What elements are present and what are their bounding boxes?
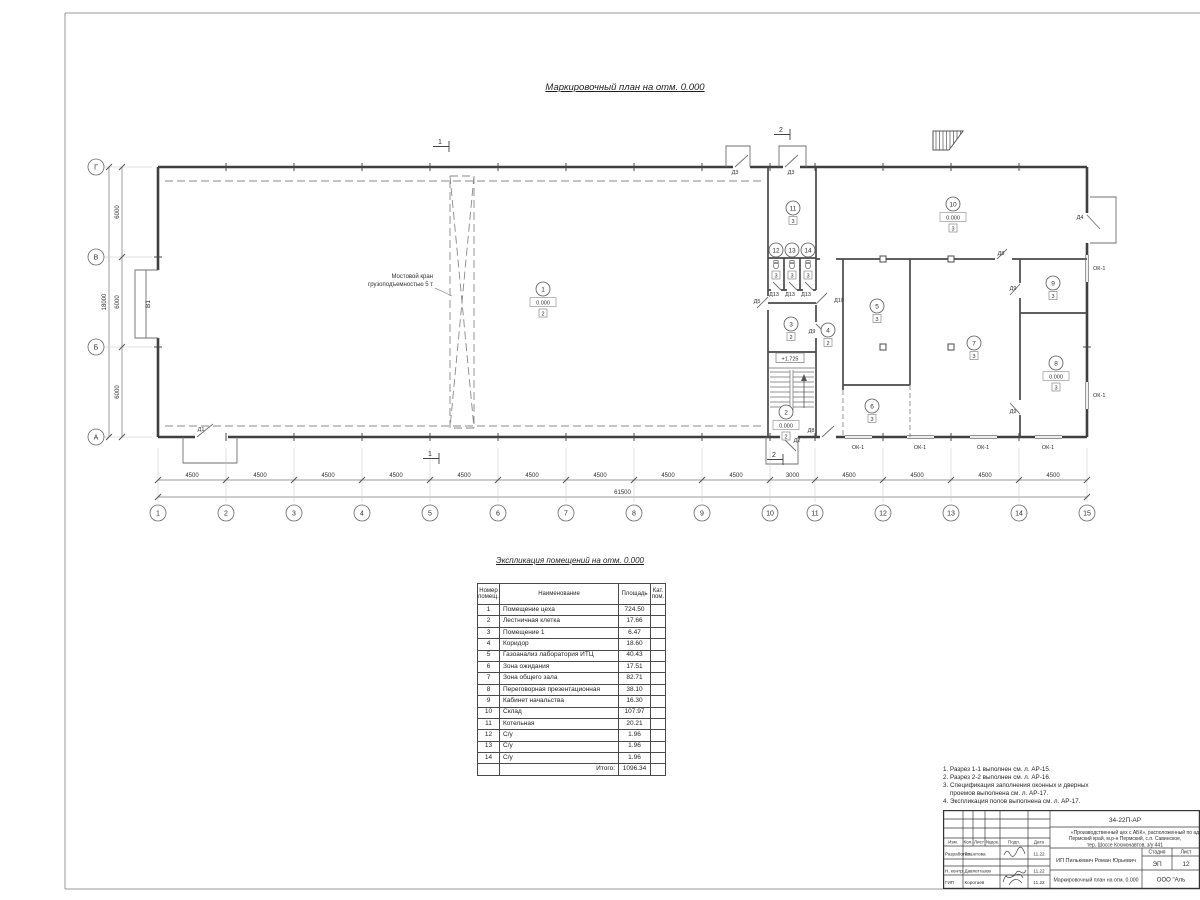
- grid-bubble: 13: [943, 505, 959, 521]
- drawing-sheet: { "titles": { "plan_title": "Маркировочн…: [0, 0, 1200, 900]
- project-address: Пермский край, м.р-н Пермский, с.п. Сави…: [1069, 835, 1181, 842]
- dimension-label: 4500: [661, 473, 675, 479]
- door-tag: Д13: [769, 292, 779, 298]
- table-row: 1Помещение цеха724.50: [478, 605, 666, 616]
- signature-date: 11.22: [1033, 880, 1045, 885]
- room-area-cell: 17.66: [619, 616, 651, 627]
- room-category-cell: [651, 707, 666, 718]
- room-name-cell: С/у: [500, 741, 619, 752]
- grid-bubble-number: 10: [766, 511, 774, 518]
- dimension-label: 4500: [593, 473, 607, 479]
- door-tag: Д3: [788, 170, 795, 176]
- grid-bubble: 7: [558, 505, 574, 521]
- room-label: 42: [821, 323, 835, 347]
- titleblock-column-header: Дата: [1034, 839, 1045, 844]
- room-area-cell: 1.96: [619, 753, 651, 764]
- room-number: 2: [784, 409, 788, 416]
- room-number-cell: 1: [478, 605, 500, 616]
- grid-bubble-number: 3: [292, 511, 296, 518]
- grid-bubble: В: [88, 249, 104, 265]
- section-mark-number: 1: [428, 451, 432, 458]
- elevation-value: 0.000: [1049, 374, 1063, 380]
- room-schedule-header: Номер помещ.НаименованиеПлощадьКат. пом.: [478, 584, 666, 605]
- grid-wall-ticks: [226, 163, 1019, 441]
- category-value: 3: [951, 226, 954, 232]
- section-mark-number: 1: [438, 139, 442, 146]
- grid-bubble: 3: [286, 505, 302, 521]
- room-name-cell: Помещение 1: [500, 627, 619, 638]
- crane-symbol: [165, 176, 763, 428]
- grid-bubble-number: 9: [700, 511, 704, 518]
- gate-label: В1: [145, 300, 152, 308]
- titleblock-column-header: Лист: [974, 839, 985, 844]
- sheet-number: 12: [1182, 861, 1190, 868]
- grid-bubble-letter: А: [94, 435, 99, 442]
- crane-label-leader: [435, 288, 452, 296]
- room-area-cell: 18.60: [619, 639, 651, 650]
- dimension-label: 4500: [1046, 473, 1060, 479]
- room-schedule-column-header: Наименование: [500, 584, 619, 605]
- room-name-cell: Склад: [500, 707, 619, 718]
- dimension-label: 4500: [729, 473, 743, 479]
- category-value: 3: [1054, 385, 1057, 391]
- room-category-cell: [651, 741, 666, 752]
- level-mark-value: +1.725: [782, 357, 799, 363]
- room-category-cell: [651, 639, 666, 650]
- grid-bubble-number: 14: [1015, 511, 1023, 518]
- room-category-cell: [651, 616, 666, 627]
- table-row: 8Переговорная презентационная38.10: [478, 684, 666, 695]
- room-number: 1: [541, 286, 545, 293]
- table-row: 5Газоанализ лаборатория ИТЦ40.43: [478, 650, 666, 661]
- room-number: 11: [790, 205, 797, 212]
- empty-cell: [651, 764, 666, 775]
- table-row: 13С/у1.96: [478, 741, 666, 752]
- room-category-cell: [651, 673, 666, 684]
- section-mark-number: 2: [779, 127, 783, 134]
- empty-cell: [478, 764, 500, 775]
- dimension-label: 4500: [525, 473, 539, 479]
- signer-name: Давлетгазов: [965, 869, 992, 874]
- room-name-cell: Котельная: [500, 718, 619, 729]
- room-area-cell: 38.10: [619, 684, 651, 695]
- project-address: тер. Шоссе Космонавтов, з/у 441: [1087, 842, 1163, 848]
- room-category-cell: [651, 730, 666, 741]
- grid-bubble: 8: [626, 505, 642, 521]
- door-tag: Д8: [998, 251, 1005, 257]
- dimension-label: 4500: [910, 473, 924, 479]
- plan-title: Маркировочный план на отм. 0.000: [455, 82, 795, 93]
- grid-bubble-number: 7: [564, 511, 568, 518]
- room-category-cell: [651, 605, 666, 616]
- door-tag: Д4: [1077, 215, 1084, 221]
- room-area-cell: 17.51: [619, 661, 651, 672]
- room-schedule-column-header: Кат. пом.: [651, 584, 666, 605]
- door-tag: Д5: [754, 299, 761, 305]
- room-name-cell: Зона общего зала: [500, 673, 619, 684]
- grid-bubble-number: 11: [811, 511, 818, 518]
- category-value: 3: [791, 219, 794, 225]
- table-row: 10Склад107.97: [478, 707, 666, 718]
- category-value: 2: [541, 311, 544, 317]
- signature-scribble: [1003, 870, 1026, 885]
- room-label: 10.0002: [530, 282, 556, 317]
- room-label: 143: [801, 243, 815, 279]
- elevation-value: 0.000: [779, 423, 793, 429]
- dimension-label: 4500: [457, 473, 471, 479]
- grid-bubble: 15: [1079, 505, 1095, 521]
- room-number-cell: 3: [478, 627, 500, 638]
- room-label: 133: [785, 243, 799, 279]
- room-number: 9: [1051, 280, 1055, 287]
- room-schedule-table: Номер помещ.НаименованиеПлощадьКат. пом.…: [477, 583, 666, 776]
- room-number-cell: 4: [478, 639, 500, 650]
- table-row: 9Кабинет начальства16.30: [478, 696, 666, 707]
- extension-lines: [104, 167, 1087, 502]
- door-tag: Д9: [1010, 286, 1017, 292]
- doc-number: 34-22П-АР: [1109, 817, 1141, 824]
- room-name-cell: Помещение цеха: [500, 605, 619, 616]
- total-value-cell: 1096.34: [619, 764, 651, 775]
- door-tag: Д9: [809, 329, 816, 335]
- category-value: 3: [790, 273, 793, 279]
- company-name: ООО "Аль: [1157, 878, 1185, 884]
- dimension-label: 4500: [253, 473, 267, 479]
- dimension-total-label: 61500: [614, 490, 631, 496]
- room-area-cell: 40.43: [619, 650, 651, 661]
- room-label: 73: [967, 336, 981, 360]
- room-name-cell: Лестничная клетка: [500, 616, 619, 627]
- grid-bubble-number: 1: [156, 511, 160, 518]
- room-label: 113: [786, 201, 800, 225]
- room-number: 3: [789, 321, 793, 328]
- grid-bubble: Г: [88, 159, 104, 175]
- elevation-value: 0.000: [946, 215, 960, 221]
- staircase: +1.725: [768, 353, 816, 410]
- crane-label: Мостовой кран: [391, 273, 433, 280]
- category-value: 3: [1051, 294, 1054, 300]
- grid-bubble-number: 12: [879, 511, 887, 518]
- door-tag: Д8: [808, 428, 815, 434]
- room-category-cell: [651, 718, 666, 729]
- door-tag: Д9: [1010, 409, 1017, 415]
- dimension-label: 6000: [115, 295, 121, 309]
- grid-bubble-number: 15: [1083, 511, 1091, 518]
- room-label: 93: [1046, 276, 1060, 300]
- category-value: 3: [870, 417, 873, 423]
- door-leaves: [197, 155, 1100, 451]
- section-mark: 2: [774, 127, 790, 140]
- category-value: 2: [784, 434, 787, 440]
- grid-bubble-number: 4: [360, 511, 364, 518]
- room-name-cell: Зона ожидания: [500, 661, 619, 672]
- door-tag: Д1: [198, 427, 205, 433]
- grid-bubble: 1: [150, 505, 166, 521]
- interior-columns: [880, 256, 954, 350]
- room-label: 32: [784, 317, 798, 341]
- room-number-cell: 7: [478, 673, 500, 684]
- room-area-cell: 20.21: [619, 718, 651, 729]
- dimension-label: 3000: [786, 473, 800, 479]
- grid-bubble: Б: [88, 339, 104, 355]
- table-row: Итого:1096.34: [478, 764, 666, 775]
- stair-direction-arrow: [801, 374, 807, 381]
- room-category-cell: [651, 661, 666, 672]
- room-area-cell: 6.47: [619, 627, 651, 638]
- titleblock-column-header: Подп.: [1008, 839, 1020, 844]
- total-label-cell: Итого:: [500, 764, 619, 775]
- grid-bubble-letter: В: [94, 255, 99, 262]
- room-category-cell: [651, 684, 666, 695]
- porches-and-gate: [135, 146, 1116, 464]
- room-number-cell: 10: [478, 707, 500, 718]
- stage-label: Стадия: [1148, 850, 1165, 856]
- room-area-cell: 1.96: [619, 741, 651, 752]
- table-row: 4Коридор18.60: [478, 639, 666, 650]
- section-mark: 2: [767, 452, 783, 465]
- room-number: 13: [788, 247, 796, 254]
- room-number-cell: 8: [478, 684, 500, 695]
- room-category-cell: [651, 753, 666, 764]
- door-tag: Д3: [732, 170, 739, 176]
- grid-bubble: 5: [422, 505, 438, 521]
- dimension-label: 4500: [185, 473, 199, 479]
- stair-treads: [768, 368, 816, 410]
- room-category-cell: [651, 627, 666, 638]
- grid-bubble: 14: [1011, 505, 1027, 521]
- wall-ticks: [154, 257, 1091, 347]
- room-name-cell: Переговорная презентационная: [500, 684, 619, 695]
- signer-role: Н. контр.: [945, 869, 964, 874]
- room-schedule-column-header: Площадь: [619, 584, 651, 605]
- room-area-cell: 82.71: [619, 673, 651, 684]
- dimension-total-label: 18000: [102, 293, 108, 310]
- table-row: 11Котельная20.21: [478, 718, 666, 729]
- dimension-label: 4500: [842, 473, 856, 479]
- grid-bubble: 4: [354, 505, 370, 521]
- room-label: 63: [865, 399, 879, 423]
- interior-walls: [768, 167, 1087, 437]
- signer-name: Решетова: [965, 852, 987, 857]
- table-row: 3Помещение 16.47: [478, 627, 666, 638]
- room-area-cell: 1.96: [619, 730, 651, 741]
- table-row: 7Зона общего зала82.71: [478, 673, 666, 684]
- room-number: 4: [826, 327, 830, 334]
- drawing-title: Маркировочный план на отм. 0.000: [1054, 877, 1139, 884]
- window-tag: ОК-1: [1093, 393, 1105, 399]
- title-block: 34-22П-АР«Производственный цех с АБК», р…: [943, 810, 1200, 889]
- grid-bubble: А: [88, 429, 104, 445]
- room-name-cell: С/у: [500, 753, 619, 764]
- room-area-cell: 107.97: [619, 707, 651, 718]
- door-tag: Д2: [794, 438, 801, 444]
- room-number-cell: 13: [478, 741, 500, 752]
- door-tag: Д10: [834, 298, 844, 304]
- grid-bubble: 12: [875, 505, 891, 521]
- sheet-notes: 1. Разрез 1-1 выполнен см. л. АР-15. 2. …: [943, 766, 1089, 806]
- grid-bubble-number: 2: [224, 511, 228, 518]
- window-tag: ОК-1: [1042, 445, 1054, 451]
- titleblock-column-header: Изм.: [948, 839, 958, 844]
- room-number-cell: 9: [478, 696, 500, 707]
- dimension-label: 4500: [978, 473, 992, 479]
- signer-name: Коротаев: [965, 880, 985, 885]
- grid-bubble-number: 8: [632, 511, 636, 518]
- room-label: 123: [769, 243, 783, 279]
- room-number-cell: 12: [478, 730, 500, 741]
- dimension-label: 6000: [115, 205, 121, 219]
- table-row: 2Лестничная клетка17.66: [478, 616, 666, 627]
- client-name: ИП Пилькевич Роман Юрьевич: [1056, 858, 1136, 864]
- table-row: 12С/у1.96: [478, 730, 666, 741]
- grid-bubble-letter: Б: [94, 345, 99, 352]
- room-schedule-column-header: Номер помещ.: [478, 584, 500, 605]
- window-tag: ОК-1: [914, 445, 926, 451]
- room-number-cell: 6: [478, 661, 500, 672]
- grid-bubble-number: 13: [947, 511, 955, 518]
- room-name-cell: С/у: [500, 730, 619, 741]
- room-number: 7: [972, 340, 976, 347]
- grid-bubble-letter: Г: [94, 165, 98, 172]
- category-value: 3: [806, 273, 809, 279]
- door-tag: Д13: [785, 292, 795, 298]
- category-value: 2: [789, 335, 792, 341]
- room-label: 80.0003: [1043, 356, 1069, 391]
- section-mark: 1: [433, 139, 449, 152]
- stage-value: ЭП: [1152, 861, 1162, 868]
- grid-bubble: 10: [762, 505, 778, 521]
- room-number-cell: 14: [478, 753, 500, 764]
- sheet-label: Лист: [1181, 850, 1193, 856]
- signature-date: 11.22: [1033, 869, 1045, 874]
- grid-bubble: 11: [807, 505, 823, 521]
- room-number: 6: [870, 403, 874, 410]
- window-tag: ОК-1: [852, 445, 864, 451]
- section-mark-number: 2: [772, 452, 776, 459]
- grid-bubble: 2: [218, 505, 234, 521]
- titleblock-column-header: Кол.: [963, 839, 972, 844]
- room-label: 53: [870, 299, 884, 323]
- grid-bubble-number: 5: [428, 511, 432, 518]
- title-block-grid: 34-22П-АР«Производственный цех с АБК», р…: [943, 810, 1200, 889]
- exterior-stair-icon: [933, 129, 963, 152]
- room-category-cell: [651, 696, 666, 707]
- room-number-cell: 11: [478, 718, 500, 729]
- window-tag: ОК-1: [977, 445, 989, 451]
- table-row: 6Зона ожидания17.51: [478, 661, 666, 672]
- room-area-cell: 16.30: [619, 696, 651, 707]
- grid-bubble-number: 6: [496, 511, 500, 518]
- room-number-cell: 2: [478, 616, 500, 627]
- category-value: 3: [972, 354, 975, 360]
- room-name-cell: Коридор: [500, 639, 619, 650]
- grid-bubble: 9: [694, 505, 710, 521]
- room-category-cell: [651, 650, 666, 661]
- room-label: 20.0002: [773, 405, 799, 440]
- signer-role: ГИП: [945, 880, 954, 885]
- crane-label: грузоподъемностью 5 т: [368, 282, 433, 288]
- room-number-cell: 5: [478, 650, 500, 661]
- category-value: 3: [774, 273, 777, 279]
- section-mark: 1: [423, 451, 439, 464]
- room-number: 10: [949, 201, 957, 208]
- door-tag: Д13: [801, 292, 811, 298]
- room-area-cell: 724.50: [619, 605, 651, 616]
- dimension-label: 6000: [115, 385, 121, 399]
- elevation-value: 0.000: [536, 300, 550, 306]
- room-number: 14: [804, 247, 812, 254]
- titleblock-column-header: №док.: [986, 839, 999, 844]
- category-value: 3: [875, 317, 878, 323]
- room-label: 100.0003: [940, 197, 966, 232]
- room-name-cell: Кабинет начальства: [500, 696, 619, 707]
- room-number: 5: [875, 303, 879, 310]
- dimension-label: 4500: [321, 473, 335, 479]
- room-schedule-title: Экспликация помещений на отм. 0.000: [470, 556, 670, 565]
- level-mark: +1.725: [776, 353, 804, 363]
- table-row: 14С/у1.96: [478, 753, 666, 764]
- room-number: 12: [772, 247, 780, 254]
- window-tag: ОК-1: [1093, 266, 1105, 272]
- signature-date: 11.22: [1033, 852, 1045, 857]
- category-value: 2: [826, 341, 829, 347]
- room-name-cell: Газоанализ лаборатория ИТЦ: [500, 650, 619, 661]
- grid-bubble: 6: [490, 505, 506, 521]
- project-address: «Производственный цех с АБК», расположен…: [1071, 829, 1199, 836]
- signature-scribble: [1004, 847, 1025, 856]
- dimension-label: 4500: [389, 473, 403, 479]
- room-number: 8: [1054, 360, 1058, 367]
